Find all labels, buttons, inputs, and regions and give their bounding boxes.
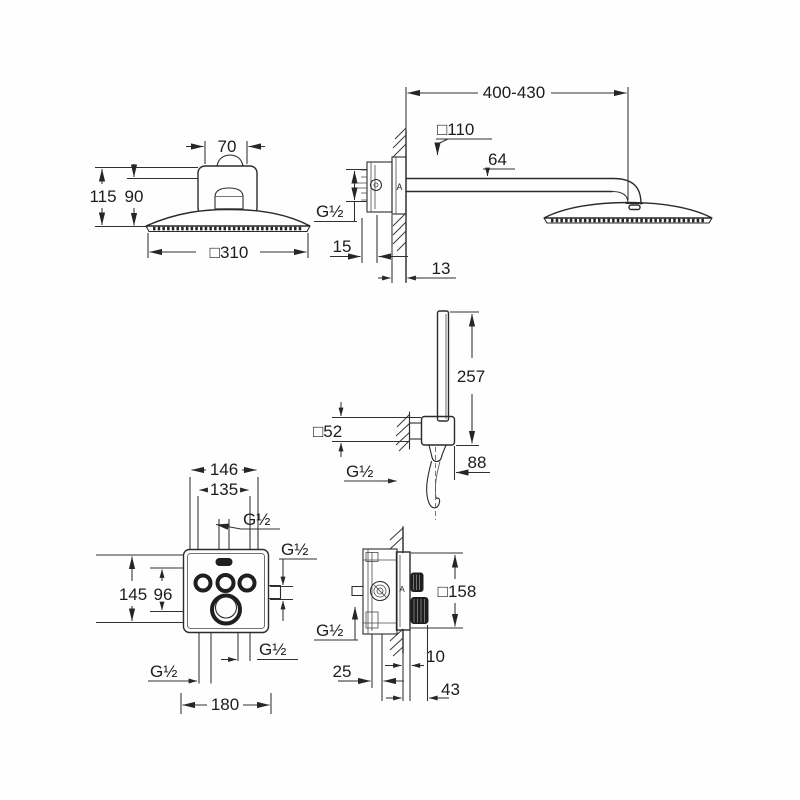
valve-side-view: A □158 G½ 25 10 43: [314, 527, 476, 701]
hand-shower-wand: [438, 311, 449, 421]
dimension-lines-hand-shower: [332, 312, 490, 481]
concealed-valve-side-body: A: [352, 549, 429, 634]
dim-head-size: □310: [210, 243, 249, 262]
dim-thread-top: G½: [243, 510, 270, 529]
shower-head-dome: [146, 210, 310, 227]
button-center: [218, 575, 234, 591]
hand-shower-shape: [410, 311, 455, 520]
dim-plate-depth: 15: [333, 237, 352, 256]
button-right: [240, 576, 255, 591]
upper-knob: [411, 573, 424, 593]
marker-label-a-side: A: [399, 585, 405, 594]
dim-thread-bottom-right: G½: [259, 640, 286, 659]
dim-height-total: 115: [89, 187, 116, 206]
dimension-lines-head-side: [314, 87, 628, 283]
dim-height-outer: 145: [119, 585, 147, 604]
valve-front-view: 146 135 G½ G½ 145 96 G½ G½ 180: [96, 460, 317, 714]
dim-total-depth: 43: [441, 680, 460, 699]
dim-wall-plate: □110: [437, 120, 474, 139]
dim-height-inner: 90: [125, 187, 144, 206]
dim-thread-bottom-left: G½: [150, 662, 177, 681]
wall-bracket-mount: [410, 423, 422, 439]
hose-outlet-cone: [429, 445, 446, 462]
dim-arm-length: 400-430: [483, 83, 545, 102]
dim-thread-top: G½: [316, 202, 343, 221]
dim-thread-hand-shower: G½: [346, 462, 373, 481]
dim-thread-valve-side: G½: [316, 621, 343, 640]
dim-projection: 88: [468, 453, 487, 472]
wall-section: [393, 128, 406, 282]
indicator-slot: [216, 559, 232, 566]
dim-bracket-size: □52: [313, 422, 342, 441]
dim-depth-min: 25: [333, 662, 352, 681]
head-shower-side-view: A: [314, 83, 712, 283]
dim-width-outer: 146: [210, 460, 238, 479]
lower-knob: [411, 597, 429, 624]
dim-thread-right: G½: [281, 540, 308, 559]
shower-system-technical-drawing: 70 115 90 □310 A: [0, 0, 800, 800]
dim-plate-size: □158: [438, 582, 477, 601]
dim-width-inner: 135: [210, 480, 238, 499]
shower-head-side-dome: [544, 203, 712, 219]
dim-hand-shower-length: 257: [457, 367, 485, 386]
head-shower-front-view: 70 115 90 □310: [89, 137, 310, 262]
dim-width-bottom: 180: [211, 695, 239, 714]
hand-shower-view: 257 □52 G½ 88: [313, 311, 490, 520]
dim-wall-offset: 13: [432, 259, 451, 278]
dim-height-inner: 96: [154, 585, 173, 604]
shower-arm: [406, 179, 712, 224]
dim-plate-offset: 10: [426, 647, 445, 666]
technical-drawing-canvas: 70 115 90 □310 A: [0, 0, 800, 800]
shower-head-front-shape: [146, 155, 310, 232]
shower-hose: [427, 462, 440, 508]
control-plate-front: [184, 550, 281, 633]
marker-label-a: A: [396, 182, 402, 192]
button-left: [196, 576, 211, 591]
concealed-valve-body: A: [356, 157, 406, 214]
dim-arm-offset: 64: [488, 150, 507, 169]
dim-top-width: 70: [218, 137, 237, 156]
head-mount-notch: [629, 205, 640, 210]
